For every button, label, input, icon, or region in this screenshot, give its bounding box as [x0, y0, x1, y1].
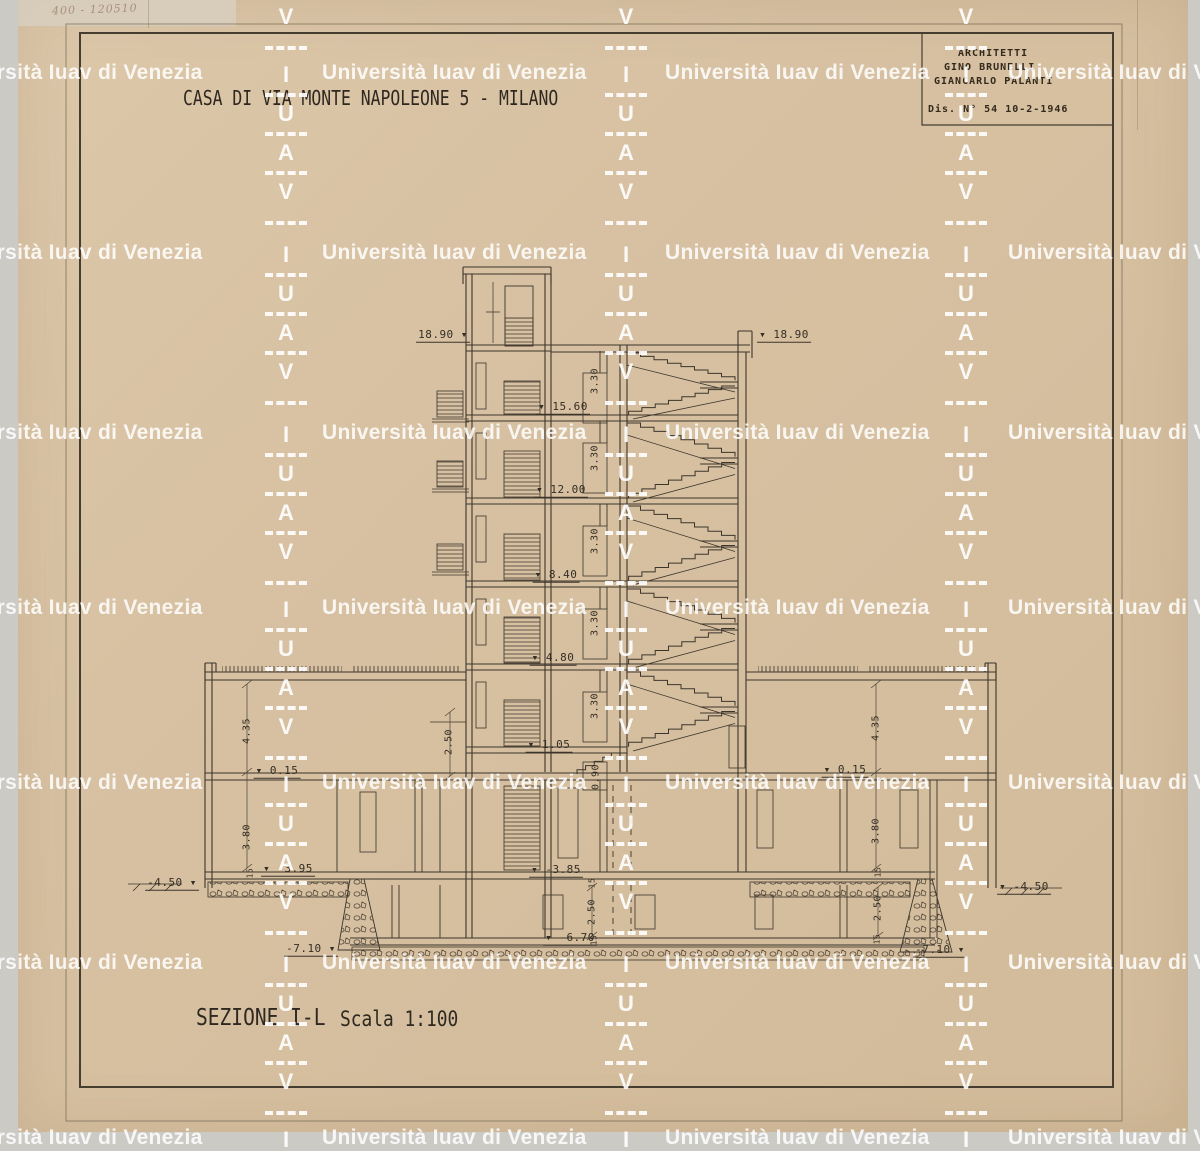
scale-caption: Scala 1:100 [340, 1007, 458, 1031]
stair-flights [577, 353, 735, 774]
stair-step-line [629, 546, 735, 581]
title-block-architetti: ARCHITETTI [958, 48, 1028, 59]
section-linework [128, 267, 1062, 960]
stair-step-line [577, 753, 620, 774]
scanned-drawing-sheet: 400 - 120510 [0, 0, 1200, 1151]
dashed-partitions [613, 785, 631, 938]
title-block-architect-1: GINO BRUNELLI [944, 62, 1035, 73]
stair-step-line [629, 712, 735, 747]
stair-step-line [633, 398, 735, 419]
title-block-drawing-number: Dis. N° 54 10-2-1946 [928, 104, 1068, 115]
section-caption: SEZIONE I-L [196, 1005, 325, 1031]
stair-step-line [627, 353, 735, 380]
stair-step-line [633, 724, 735, 752]
stair-step-line [629, 629, 735, 664]
stair-step-line [629, 463, 735, 498]
stair-step-line [627, 365, 735, 392]
title-block-architect-2: GIANCARLO PALANTI [934, 76, 1053, 87]
building-section-drawing [0, 0, 1200, 1151]
stair-step-line [629, 386, 735, 415]
drawing-title: CASA DI VIA MONTE NAPOLEONE 5 - MILANO [183, 86, 558, 110]
dimension-lines [242, 680, 883, 940]
